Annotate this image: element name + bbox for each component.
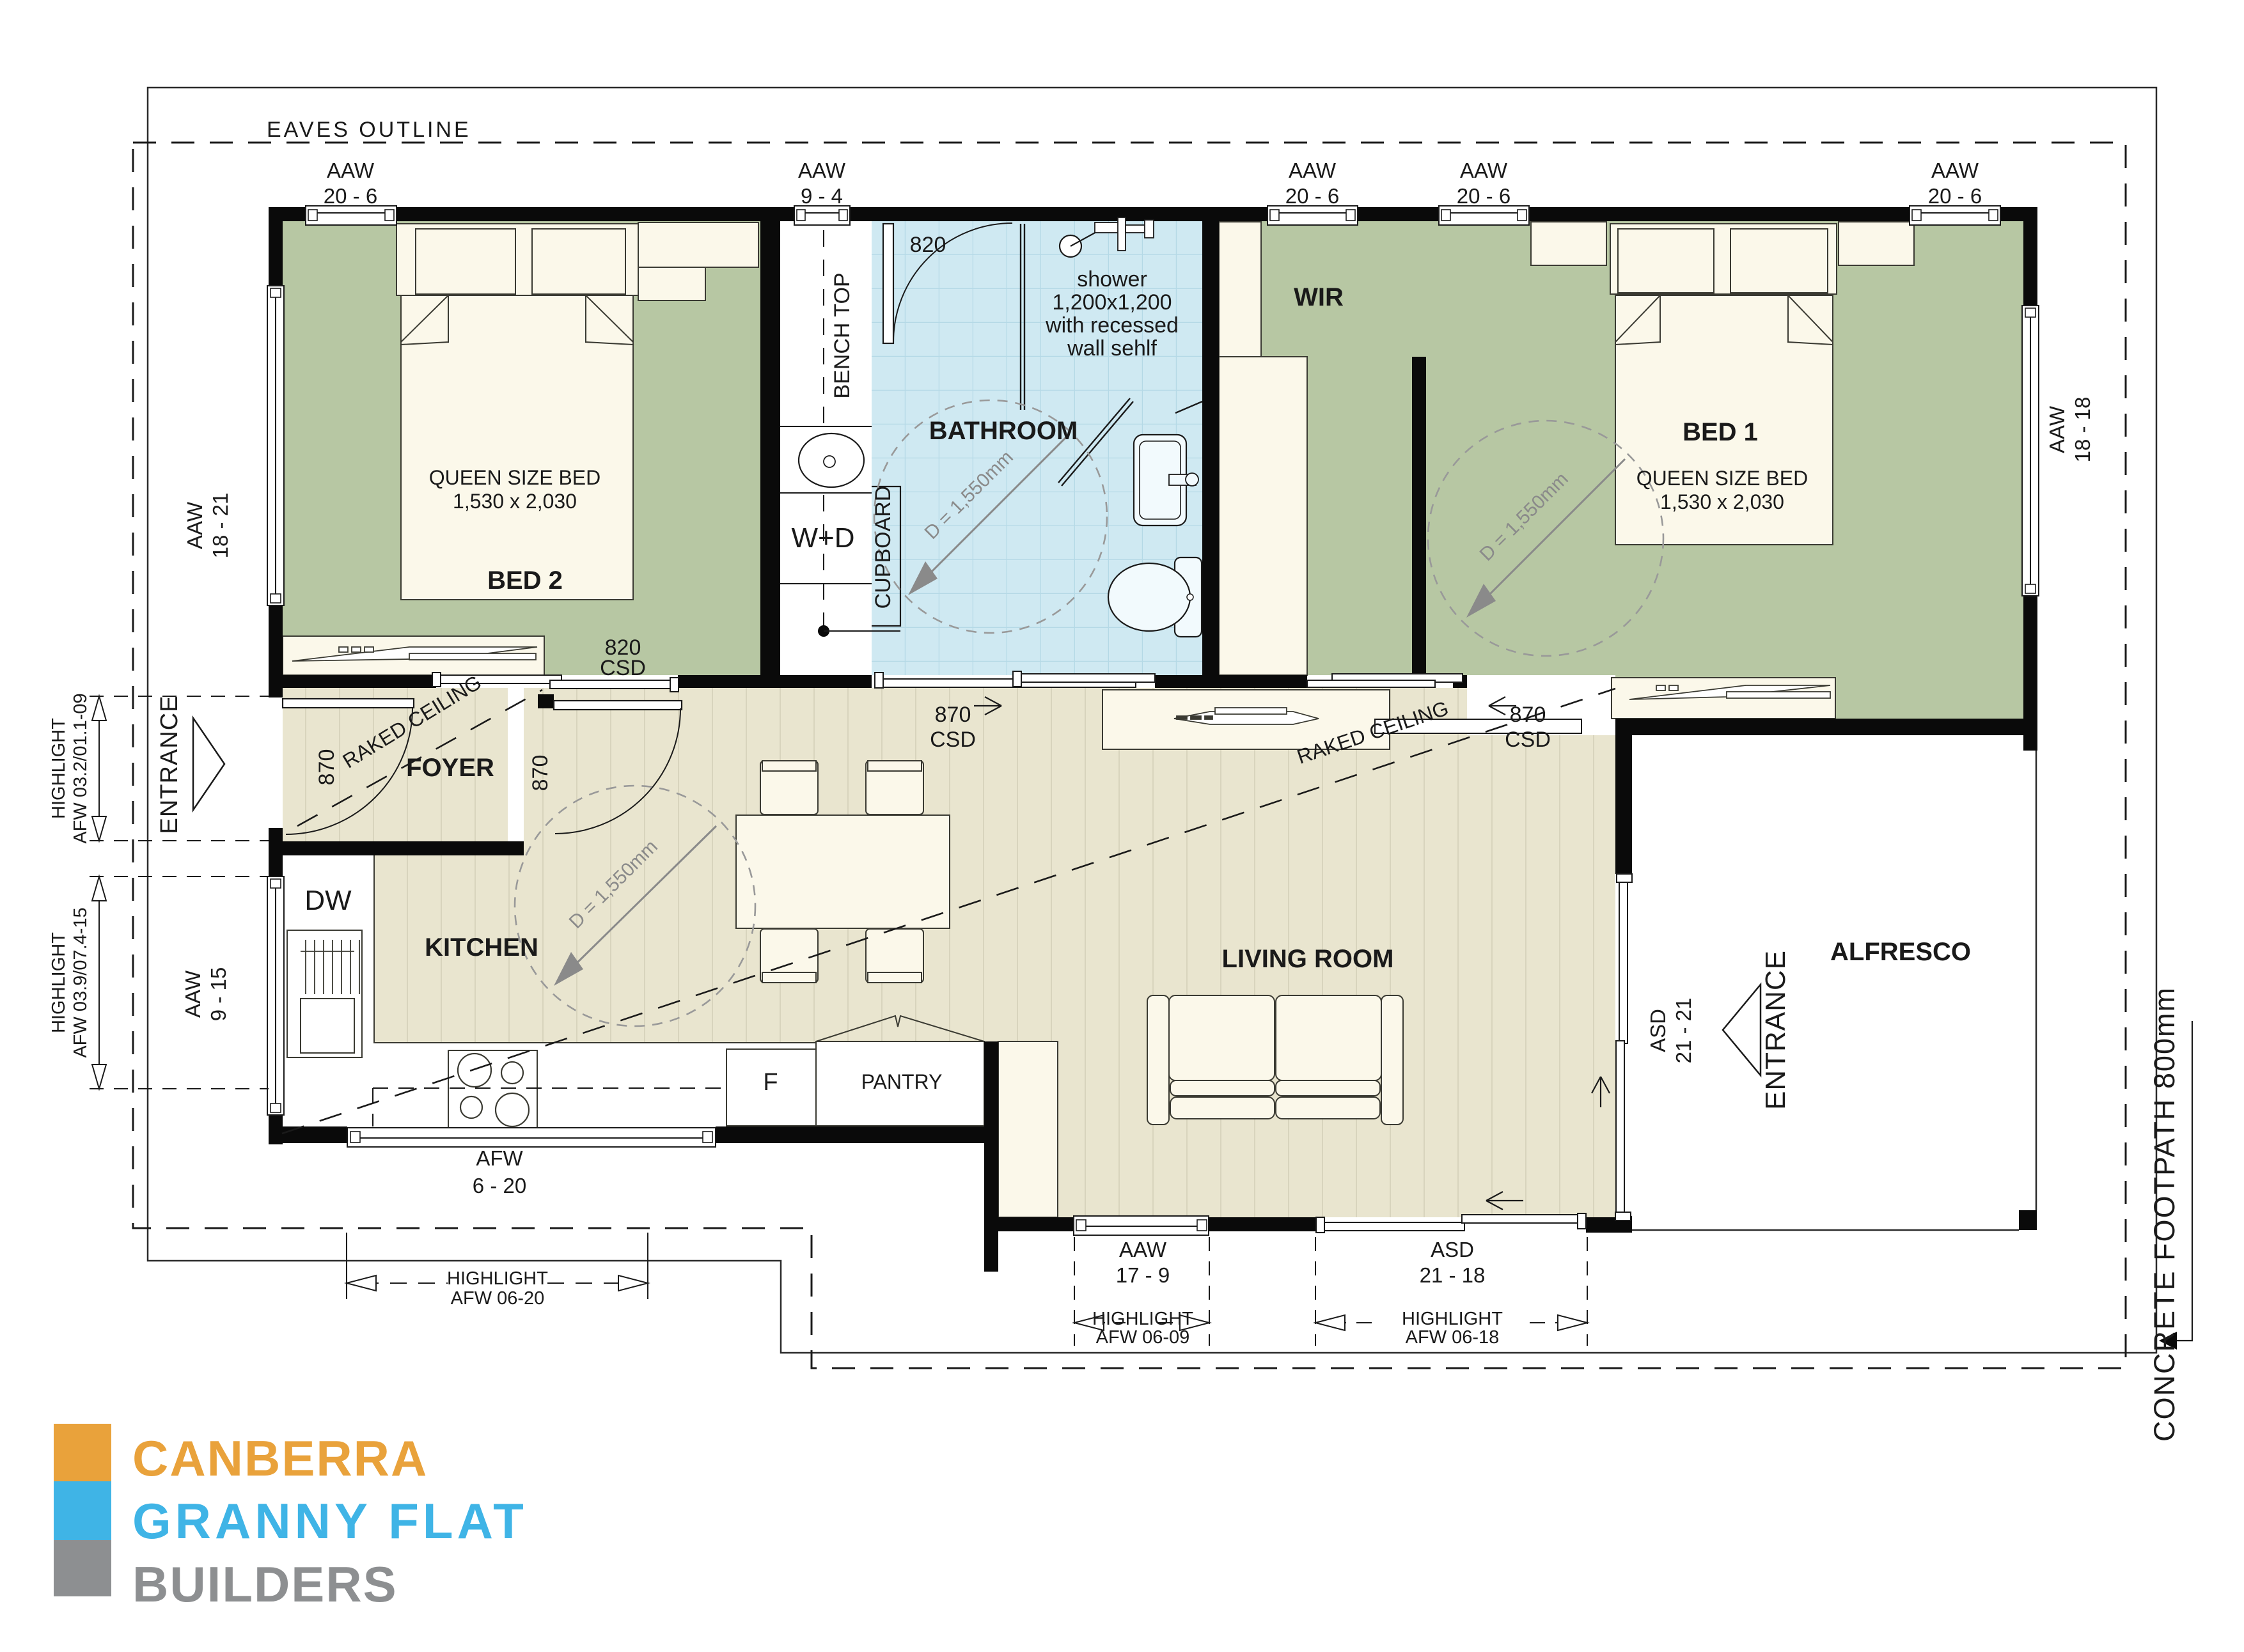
svg-text:HIGHLIGHT: HIGHLIGHT xyxy=(1402,1309,1503,1329)
svg-text:HIGHLIGHT: HIGHLIGHT xyxy=(49,718,69,819)
svg-text:18 - 21: 18 - 21 xyxy=(208,493,232,559)
svg-text:820: 820 xyxy=(910,233,946,257)
svg-text:ASD: ASD xyxy=(1646,1009,1670,1052)
svg-text:HIGHLIGHT: HIGHLIGHT xyxy=(447,1268,548,1289)
svg-text:F: F xyxy=(763,1069,778,1096)
svg-text:21 - 18: 21 - 18 xyxy=(1420,1263,1486,1287)
svg-text:QUEEN SIZE BED: QUEEN SIZE BED xyxy=(429,466,601,489)
svg-text:870: 870 xyxy=(315,749,339,786)
svg-text:AAW: AAW xyxy=(183,501,207,549)
svg-text:BUILDERS: BUILDERS xyxy=(132,1556,398,1612)
svg-text:QUEEN SIZE BED: QUEEN SIZE BED xyxy=(1636,467,1809,490)
svg-text:ENTRANCE: ENTRANCE xyxy=(156,695,183,834)
svg-text:AAW: AAW xyxy=(327,159,375,182)
svg-text:ASD: ASD xyxy=(1431,1238,1474,1261)
svg-text:CONCRETE FOOTPATH 800mm: CONCRETE FOOTPATH 800mm xyxy=(2148,986,2181,1442)
svg-text:FOYER: FOYER xyxy=(406,754,494,782)
svg-text:CSD: CSD xyxy=(930,728,976,752)
svg-text:wall sehlf: wall sehlf xyxy=(1067,336,1157,361)
svg-text:9 - 15: 9 - 15 xyxy=(207,967,230,1021)
svg-text:CSD: CSD xyxy=(600,656,646,680)
svg-text:PANTRY: PANTRY xyxy=(861,1070,943,1093)
svg-text:HIGHLIGHT: HIGHLIGHT xyxy=(1092,1309,1193,1329)
svg-text:CUPBOARD: CUPBOARD xyxy=(871,486,895,609)
svg-text:AFW 06-09: AFW 06-09 xyxy=(1096,1327,1190,1348)
svg-text:HIGHLIGHT: HIGHLIGHT xyxy=(49,932,69,1033)
svg-text:BED 2: BED 2 xyxy=(487,566,563,595)
svg-text:18 - 18: 18 - 18 xyxy=(2071,397,2094,463)
svg-text:ENTRANCE: ENTRANCE xyxy=(1760,950,1791,1110)
svg-text:LIVING ROOM: LIVING ROOM xyxy=(1222,945,1394,973)
svg-text:DW: DW xyxy=(304,885,352,916)
svg-text:870: 870 xyxy=(1510,703,1546,727)
svg-text:BENCH TOP: BENCH TOP xyxy=(830,272,854,398)
svg-text:20 - 6: 20 - 6 xyxy=(1928,184,1982,208)
svg-text:20 - 6: 20 - 6 xyxy=(1457,184,1510,208)
svg-text:870: 870 xyxy=(528,755,553,791)
svg-text:CSD: CSD xyxy=(1505,728,1551,752)
svg-text:WIR: WIR xyxy=(1294,283,1344,311)
svg-text:shower: shower xyxy=(1077,267,1147,292)
svg-text:AFW 06-20: AFW 06-20 xyxy=(451,1288,545,1309)
svg-text:ALFRESCO: ALFRESCO xyxy=(1830,938,1971,966)
svg-text:AAW: AAW xyxy=(181,970,205,1018)
svg-text:GRANNY FLAT: GRANNY FLAT xyxy=(132,1493,528,1549)
svg-text:CANBERRA: CANBERRA xyxy=(132,1430,428,1486)
svg-text:20 - 6: 20 - 6 xyxy=(1285,184,1339,208)
svg-text:with recessed: with recessed xyxy=(1045,313,1179,338)
svg-text:AAW: AAW xyxy=(1119,1238,1167,1261)
svg-text:21 - 21: 21 - 21 xyxy=(1672,998,1695,1064)
svg-text:AFW 03.9/07.4-15: AFW 03.9/07.4-15 xyxy=(70,907,91,1057)
svg-text:AAW: AAW xyxy=(1931,159,1979,182)
svg-text:1,200x1,200: 1,200x1,200 xyxy=(1052,290,1172,315)
svg-text:EAVES OUTLINE: EAVES OUTLINE xyxy=(267,118,471,142)
svg-text:17 - 9: 17 - 9 xyxy=(1116,1263,1170,1287)
svg-text:BATHROOM: BATHROOM xyxy=(929,417,1078,445)
svg-text:9 - 4: 9 - 4 xyxy=(801,184,843,208)
svg-text:BED 1: BED 1 xyxy=(1683,418,1758,446)
svg-text:AAW: AAW xyxy=(798,159,846,182)
svg-text:AAW: AAW xyxy=(1289,159,1337,182)
svg-text:AAW: AAW xyxy=(2045,405,2069,453)
svg-text:W+D: W+D xyxy=(792,522,855,554)
svg-text:AAW: AAW xyxy=(1460,159,1508,182)
svg-text:AFW: AFW xyxy=(476,1146,523,1170)
svg-text:6 - 20: 6 - 20 xyxy=(473,1174,526,1197)
svg-text:1,530 x 2,030: 1,530 x 2,030 xyxy=(1660,490,1784,513)
svg-text:KITCHEN: KITCHEN xyxy=(425,933,538,962)
svg-text:20 - 6: 20 - 6 xyxy=(324,184,377,208)
svg-text:AFW 06-18: AFW 06-18 xyxy=(1406,1327,1500,1348)
svg-text:AFW 03.2/01.1-09: AFW 03.2/01.1-09 xyxy=(70,693,91,843)
svg-text:870: 870 xyxy=(935,703,971,727)
svg-text:1,530 x 2,030: 1,530 x 2,030 xyxy=(453,490,577,513)
